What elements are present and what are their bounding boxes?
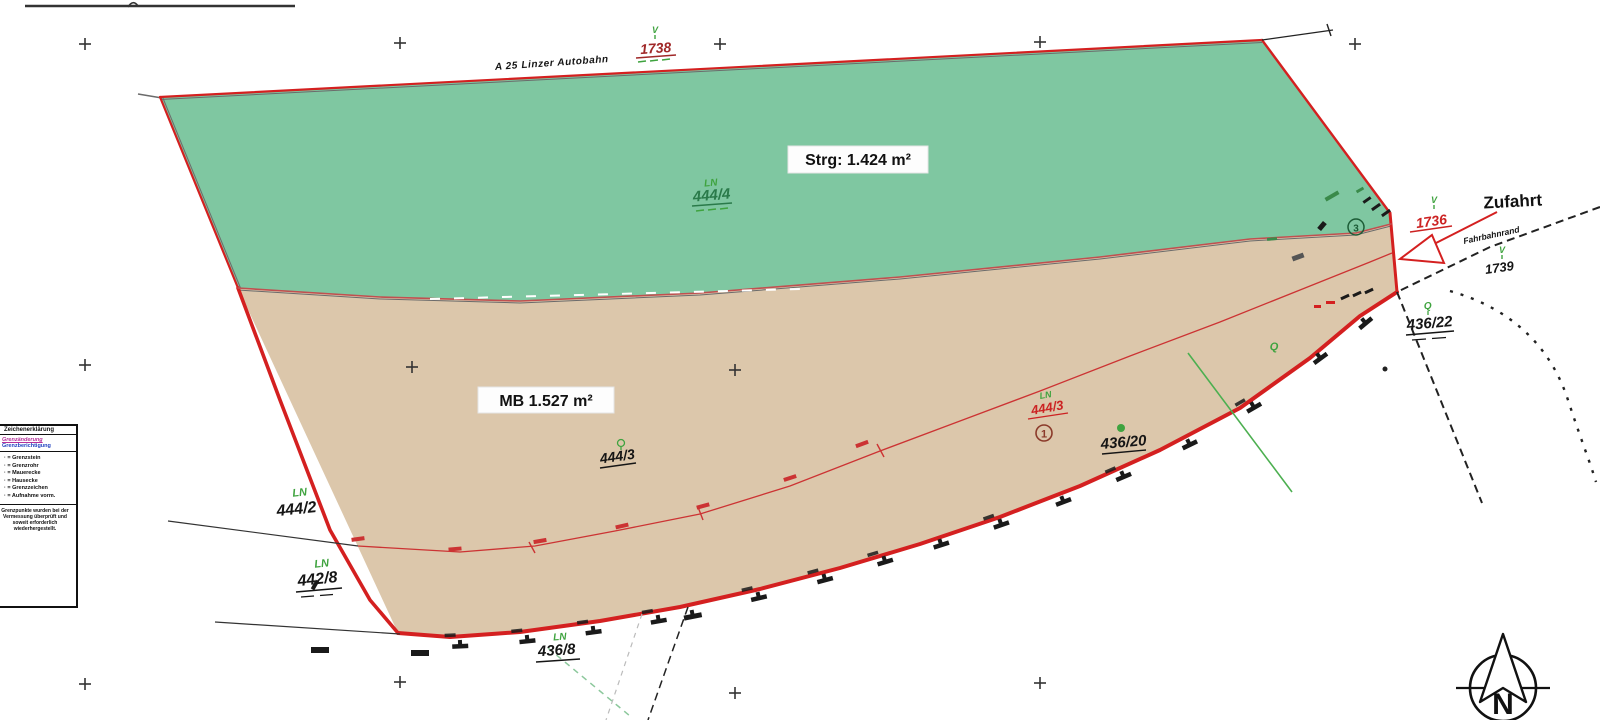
svg-text:444/2: 444/2 <box>275 499 318 520</box>
svg-text:3: 3 <box>1353 224 1359 235</box>
svg-text:442/8: 442/8 <box>296 569 339 590</box>
cutoff-title-line <box>25 3 295 7</box>
cadastral-plan-page: Zeichenerklärung Grenzänderung Grenzberi… <box>0 0 1600 720</box>
fahrbahnrand-label: Fahrbahnrand <box>1462 224 1521 246</box>
map-canvas: A 25 Linzer Autobahn V 1738 Strg: 1.424 … <box>0 0 1600 720</box>
legend-item: · = Grenzrohr <box>0 463 76 471</box>
zufahrt-label: Zufahrt <box>1483 190 1543 212</box>
legend-symbol-list: · = Grenzstein · = Grenzrohr · = Mauerec… <box>0 452 76 505</box>
point-1736-label: V 1736 <box>1410 195 1452 232</box>
legend-item: · = Mauerecke <box>0 470 76 478</box>
svg-text:Strg: 1.424 m²: Strg: 1.424 m² <box>805 152 911 169</box>
svg-text:1: 1 <box>1041 429 1047 441</box>
north-arrow-icon: N <box>1456 634 1550 720</box>
svg-text:Q: Q <box>1423 301 1432 313</box>
svg-text:MB 1.527 m²: MB 1.527 m² <box>499 393 592 410</box>
legend-note: Grenzpunkte wurden bei der Vermessung üb… <box>0 505 76 535</box>
svg-text:1739: 1739 <box>1484 258 1515 277</box>
legend-item: · = Grenzstein <box>0 455 76 463</box>
svg-text:LN: LN <box>292 486 309 500</box>
legend-magenta-item: Grenzänderung <box>0 435 76 443</box>
parcel-442-8-label: LN 442/8 <box>296 557 342 597</box>
svg-text:436/8: 436/8 <box>536 641 576 661</box>
svg-text:LN: LN <box>314 557 331 571</box>
strg-area-label: Strg: 1.424 m² <box>788 146 928 173</box>
parcel-444-2-label: LN 444/2 <box>275 486 318 520</box>
legend-item: · = Grenzzeichen <box>0 485 76 493</box>
legend-blue-item: Grenzberichtigung <box>0 443 76 452</box>
legend-item: · = Aufnahme vorm. <box>0 493 76 501</box>
parcel-436-8-label: LN 436/8 <box>536 632 580 662</box>
svg-text:444/4: 444/4 <box>691 185 732 205</box>
point-1739-label: V 1739 <box>1484 245 1515 277</box>
legend-box: Zeichenerklärung Grenzänderung Grenzberi… <box>0 424 78 608</box>
north-letter: N <box>1492 688 1514 720</box>
legend-item: · = Hausecke <box>0 478 76 486</box>
parcel-436-22-label: Q 436/22 <box>1405 301 1454 340</box>
v-mark: V <box>652 25 659 35</box>
point-1738-label: V 1738 <box>636 25 676 62</box>
svg-text:436/22: 436/22 <box>1405 313 1454 334</box>
legend-title: Zeichenerklärung <box>0 426 76 435</box>
svg-text:1738: 1738 <box>640 39 672 57</box>
q-line-label: Q <box>1270 341 1279 353</box>
mb-area-label: MB 1.527 m² <box>478 387 614 413</box>
autobahn-label: A 25 Linzer Autobahn <box>494 54 610 73</box>
svg-text:V: V <box>1431 195 1438 205</box>
svg-text:1736: 1736 <box>1415 211 1448 231</box>
svg-text:V: V <box>1499 245 1506 255</box>
tree-point-icon <box>1117 424 1125 432</box>
